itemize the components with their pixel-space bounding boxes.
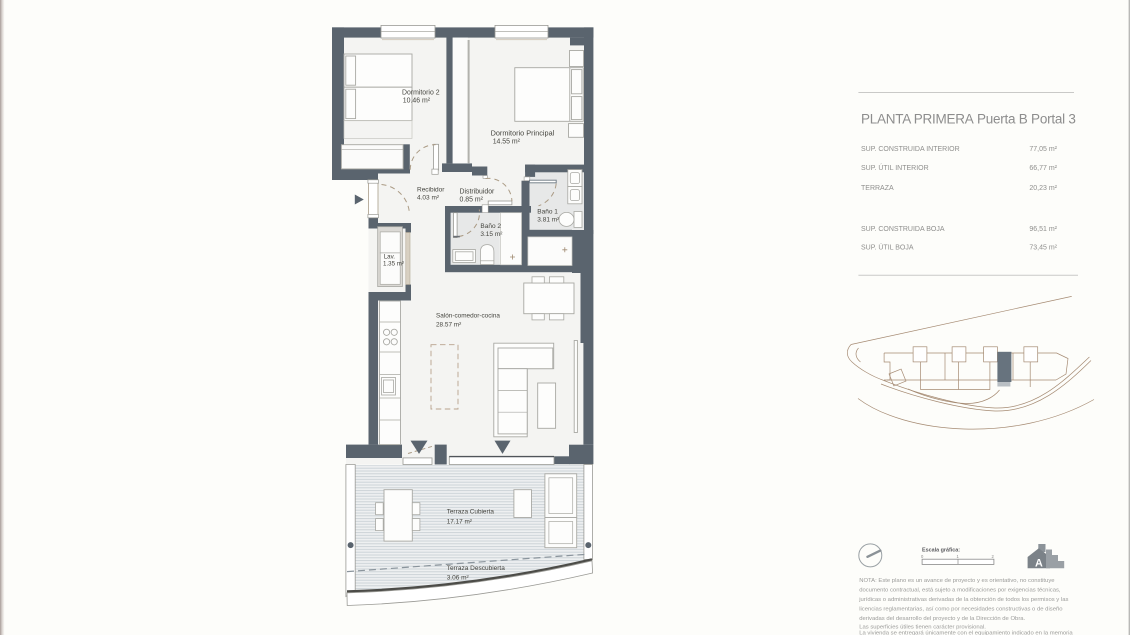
svg-text:Recibidor: Recibidor [417, 187, 445, 194]
svg-text:licencias reglamentarias, así: licencias reglamentarias, así como por n… [859, 607, 1063, 613]
svg-text:SUP. ÚTIL BOJA: SUP. ÚTIL BOJA [861, 243, 914, 252]
svg-text:Baño 1: Baño 1 [537, 209, 558, 216]
svg-text:Salón-comedor-cocina: Salón-comedor-cocina [436, 313, 500, 320]
svg-text:3.15 m²: 3.15 m² [480, 231, 503, 238]
svg-text:Terraza Cubierta: Terraza Cubierta [447, 509, 495, 516]
svg-text:96,51 m²: 96,51 m² [1029, 226, 1057, 233]
svg-text:Distribuidor: Distribuidor [460, 189, 496, 196]
svg-text:3.81 m²: 3.81 m² [537, 217, 560, 224]
svg-text:La vivienda se entregará única: La vivienda se entregará únicamente con … [859, 631, 1073, 635]
svg-text:28.57 m²: 28.57 m² [436, 322, 461, 329]
svg-text:A: A [1035, 557, 1043, 569]
svg-text:Dormitorio 2: Dormitorio 2 [402, 90, 440, 97]
svg-text:77,05 m²: 77,05 m² [1029, 146, 1057, 153]
svg-text:TERRAZA: TERRAZA [861, 185, 894, 192]
svg-text:SUP. CONSTRUIDA BOJA: SUP. CONSTRUIDA BOJA [861, 226, 945, 233]
svg-text:jurídicas o administrativas de: jurídicas o administrativas derivadas de… [858, 597, 1068, 603]
svg-text:20,23 m²: 20,23 m² [1029, 185, 1057, 192]
svg-text:1.35 m²: 1.35 m² [383, 261, 404, 268]
svg-text:documento contractual, está su: documento contractual, está sujeto a mod… [859, 588, 1061, 594]
svg-text:derivadas del desarrollo del p: derivadas del desarrollo del proyecto y … [859, 616, 1025, 622]
svg-text:17.17 m²: 17.17 m² [447, 519, 472, 526]
svg-text:3.06 m²: 3.06 m² [447, 575, 470, 582]
svg-text:SUP. CONSTRUIDA INTERIOR: SUP. CONSTRUIDA INTERIOR [861, 146, 960, 153]
svg-text:Las superficies útiles tienen: Las superficies útiles tienen carácter p… [859, 624, 986, 630]
svg-text:NOTA: Este plano es un avance: NOTA: Este plano es un avance de proyect… [859, 578, 1055, 584]
svg-text:73,45 m²: 73,45 m² [1029, 245, 1057, 252]
svg-text:4.03 m²: 4.03 m² [417, 195, 440, 202]
svg-text:Dormitorio Principal: Dormitorio Principal [491, 129, 555, 138]
svg-text:PLANTA PRIMERA Puerta B Portal: PLANTA PRIMERA Puerta B Portal 3 [861, 112, 1076, 127]
svg-text:Lav.: Lav. [384, 254, 396, 261]
svg-text:Baño 2: Baño 2 [480, 223, 501, 230]
svg-text:10.46 m²: 10.46 m² [403, 98, 431, 105]
svg-text:0.85 m²: 0.85 m² [460, 197, 484, 204]
svg-text:66,77 m²: 66,77 m² [1029, 165, 1057, 172]
svg-text:14.55 m²: 14.55 m² [493, 139, 521, 146]
svg-text:Terraza Descubierta: Terraza Descubierta [447, 565, 506, 572]
svg-text:SUP. ÚTIL INTERIOR: SUP. ÚTIL INTERIOR [861, 163, 929, 172]
svg-text:Escala gráfica:: Escala gráfica: [922, 548, 960, 554]
